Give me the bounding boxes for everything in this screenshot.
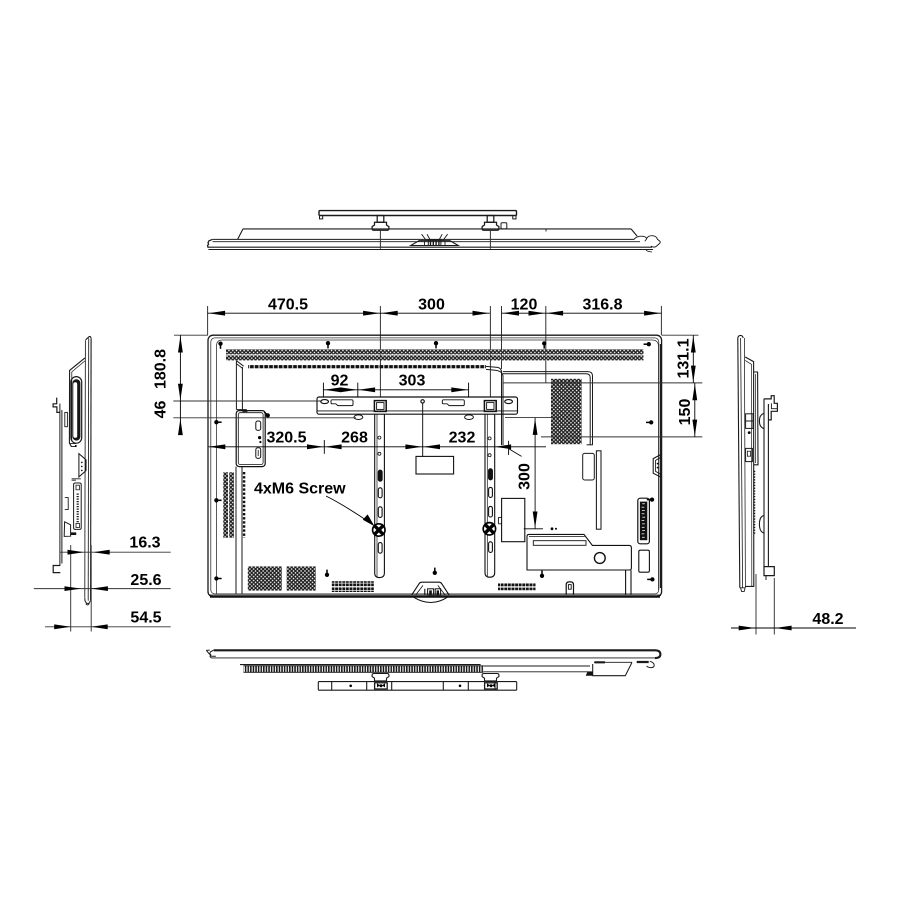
svg-text:150: 150 [677, 399, 694, 426]
svg-text:16.3: 16.3 [129, 535, 160, 552]
svg-text:300: 300 [418, 297, 445, 314]
svg-text:300: 300 [517, 463, 534, 490]
svg-text:4xM6 Screw: 4xM6 Screw [254, 480, 346, 497]
svg-text:232: 232 [449, 430, 476, 447]
svg-text:46: 46 [153, 401, 170, 419]
svg-text:48.2: 48.2 [812, 611, 843, 628]
svg-text:180.8: 180.8 [153, 349, 170, 389]
svg-text:470.5: 470.5 [268, 297, 308, 314]
svg-text:92: 92 [331, 373, 349, 390]
svg-text:54.5: 54.5 [130, 610, 161, 627]
svg-text:303: 303 [399, 373, 426, 390]
svg-text:320.5: 320.5 [266, 430, 306, 447]
svg-text:25.6: 25.6 [130, 572, 161, 589]
svg-text:316.8: 316.8 [582, 297, 622, 314]
svg-text:120: 120 [511, 297, 538, 314]
svg-text:131.1: 131.1 [676, 338, 693, 378]
svg-text:268: 268 [341, 430, 368, 447]
